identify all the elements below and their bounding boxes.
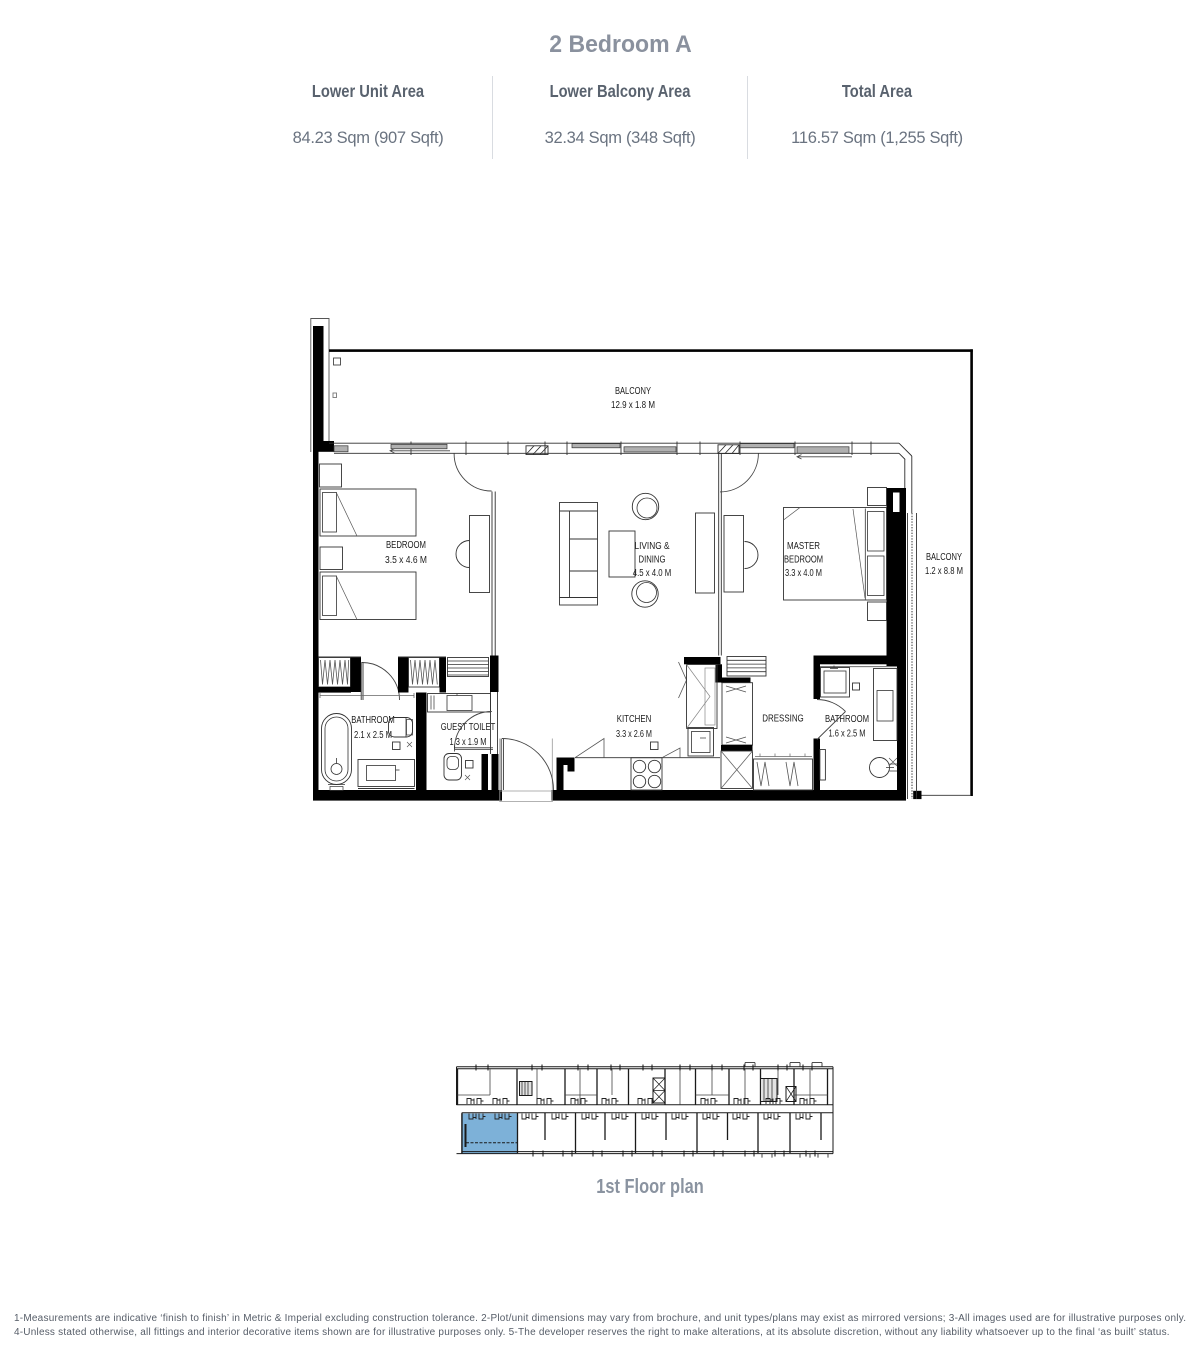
svg-text:GUEST TOILET: GUEST TOILET bbox=[441, 722, 496, 733]
svg-text:12.9 x 1.8 M: 12.9 x 1.8 M bbox=[611, 400, 655, 411]
svg-text:3.3 x 2.6 M: 3.3 x 2.6 M bbox=[616, 729, 652, 740]
svg-text:BALCONY: BALCONY bbox=[615, 386, 651, 397]
svg-text:BALCONY: BALCONY bbox=[926, 552, 962, 563]
svg-text:LIVING &: LIVING & bbox=[635, 541, 670, 552]
svg-text:1.2 x 8.8 M: 1.2 x 8.8 M bbox=[925, 566, 963, 577]
svg-text:1.6 x 2.5 M: 1.6 x 2.5 M bbox=[829, 729, 866, 740]
svg-text:DRESSING: DRESSING bbox=[762, 714, 804, 725]
svg-text:2.1 x 2.5 M: 2.1 x 2.5 M bbox=[354, 730, 392, 741]
svg-text:MASTER: MASTER bbox=[787, 541, 820, 552]
svg-text:4.5 x 4.0 M: 4.5 x 4.0 M bbox=[633, 568, 672, 579]
svg-text:KITCHEN: KITCHEN bbox=[617, 714, 652, 725]
svg-text:3.3 x 4.0 M: 3.3 x 4.0 M bbox=[785, 568, 822, 579]
svg-text:DINING: DINING bbox=[639, 555, 666, 566]
svg-text:BATHROOM: BATHROOM bbox=[825, 714, 869, 725]
svg-text:3.5 x 4.6 M: 3.5 x 4.6 M bbox=[385, 555, 427, 566]
svg-text:BEDROOM: BEDROOM bbox=[784, 555, 823, 566]
svg-text:BEDROOM: BEDROOM bbox=[386, 540, 426, 551]
